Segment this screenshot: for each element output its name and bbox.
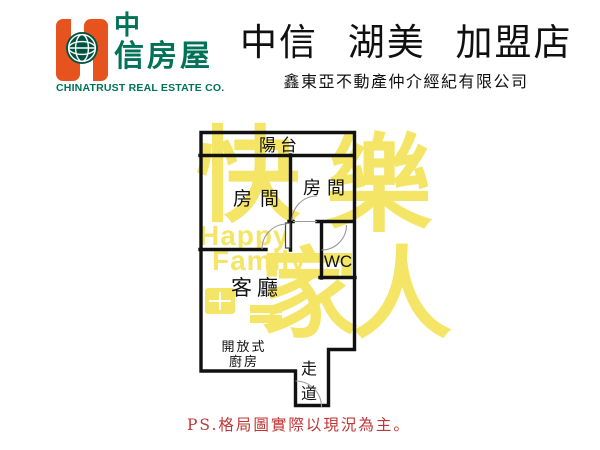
bedroom-left-label: 房間 — [233, 188, 287, 210]
balcony-label: 陽台 — [259, 136, 301, 156]
wc-label: WC — [324, 252, 352, 271]
left-bedroom-door-leaf — [286, 223, 291, 248]
kitchen-label-line1: 開放式 — [221, 340, 266, 355]
wc-door-arc — [322, 225, 347, 250]
kitchen-label-line2: 廚房 — [229, 354, 259, 370]
footer-disclaimer-note: PS.格局圖實際以現況為主。 — [187, 413, 411, 435]
bedroom-right-label: 房間 — [303, 178, 351, 199]
floorplan: 陽台 房間 房間 WC 客廳 開放式 廚房 走 道 — [0, 0, 600, 450]
right-bedroom-door-arc — [292, 196, 317, 221]
hallway-label-top: 走 — [301, 359, 317, 378]
living-room-label: 客廳 — [231, 276, 283, 300]
left-bedroom-door-arc — [262, 224, 287, 249]
hallway-label-bottom: 道 — [301, 384, 317, 403]
